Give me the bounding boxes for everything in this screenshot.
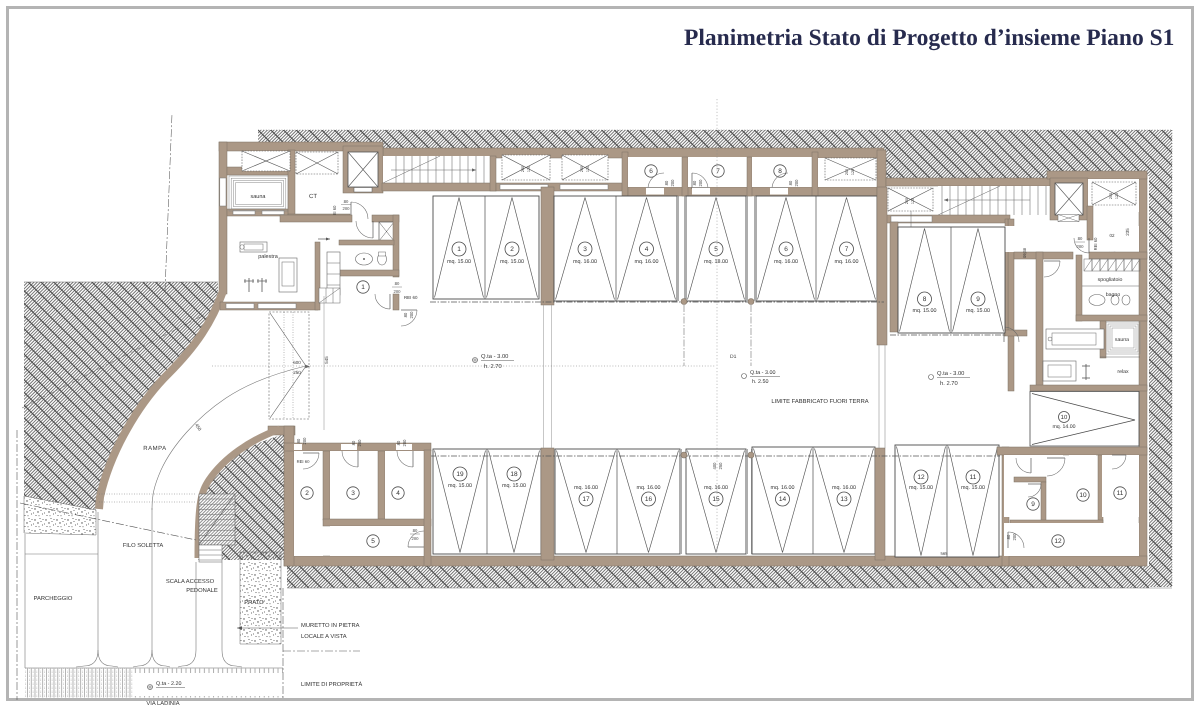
svg-text:RAMPA: RAMPA [143,445,166,452]
svg-text:120: 120 [911,198,915,204]
svg-text:1: 1 [457,246,461,253]
svg-text:80: 80 [413,528,418,533]
svg-text:200: 200 [409,311,414,319]
svg-text:400: 400 [712,462,717,470]
svg-text:1: 1 [361,284,365,291]
svg-text:Q.ta - 3.00: Q.ta - 3.00 [481,353,508,360]
svg-text:Q.ta - 3.00: Q.ta - 3.00 [937,370,964,377]
svg-text:200: 200 [580,166,584,172]
svg-text:PRATO: PRATO [244,599,264,606]
svg-text:13: 13 [840,496,848,503]
svg-text:120: 120 [851,169,855,175]
svg-text:D1: D1 [730,354,737,360]
svg-text:mq. 16.00: mq. 16.00 [774,259,798,265]
svg-text:Planimetria Stato di Progetto: Planimetria Stato di Progetto d’insieme … [684,25,1174,51]
svg-text:200: 200 [412,536,420,541]
svg-text:18: 18 [510,471,518,478]
svg-text:mq. 16.00: mq. 16.00 [574,485,598,491]
svg-text:2: 2 [510,246,514,253]
svg-text:200: 200 [845,169,849,175]
svg-text:SCALA ACCESSO: SCALA ACCESSO [166,578,215,585]
svg-text:relax: relax [1117,369,1129,375]
svg-text:palestra: palestra [258,254,279,260]
svg-text:200: 200 [357,439,362,447]
svg-text:4: 4 [645,246,649,253]
svg-text:14: 14 [779,496,787,503]
svg-text:200: 200 [394,289,402,294]
svg-text:80: 80 [396,440,401,445]
svg-text:3: 3 [583,246,587,253]
svg-text:mq. 16.00: mq. 16.00 [835,259,859,265]
svg-text:600: 600 [293,360,301,365]
svg-text:80: 80 [692,180,697,185]
svg-text:mq. 15.00: mq. 15.00 [961,485,985,491]
svg-text:LIMITE DI PROPRIETÀ: LIMITE DI PROPRIETÀ [301,680,362,688]
svg-text:9: 9 [976,296,980,303]
svg-text:120: 120 [586,166,590,172]
svg-text:REI 60: REI 60 [297,459,310,464]
svg-text:16: 16 [645,496,653,503]
svg-text:spogliatoio: spogliatoio [1098,277,1123,283]
svg-text:h. 2.50: h. 2.50 [752,379,769,385]
svg-text:80: 80 [344,199,349,204]
svg-text:80: 80 [664,180,669,185]
svg-text:80: 80 [403,312,408,317]
svg-text:200: 200 [794,179,799,187]
svg-text:250: 250 [718,462,723,470]
svg-text:8: 8 [923,296,927,303]
svg-text:80: 80 [296,438,301,443]
svg-text:200: 200 [402,439,407,447]
svg-text:6: 6 [784,246,788,253]
svg-text:200: 200 [1077,244,1085,249]
svg-text:sauna: sauna [251,194,267,200]
svg-text:REI 60: REI 60 [1093,237,1098,250]
svg-text:200: 200 [905,198,909,204]
svg-text:200: 200 [1012,533,1017,541]
svg-text:mq. 15.00: mq. 15.00 [966,308,990,314]
svg-text:mq. 15.00: mq. 15.00 [448,483,472,489]
svg-text:120: 120 [527,166,531,172]
svg-text:17: 17 [582,496,590,503]
svg-text:80: 80 [788,180,793,185]
svg-text:19: 19 [456,471,464,478]
svg-text:10: 10 [1061,414,1068,421]
svg-text:bagno: bagno [1106,292,1121,298]
svg-text:VIA LADINIA: VIA LADINIA [146,701,179,707]
svg-text:mq. 15.00: mq. 15.00 [500,259,524,265]
svg-text:mq. 18.00: mq. 18.00 [704,259,728,265]
svg-text:120: 120 [1115,193,1119,199]
svg-text:mq. 15.00: mq. 15.00 [502,483,526,489]
svg-text:sauna: sauna [1115,337,1129,343]
svg-text:mq. 16.00: mq. 16.00 [771,485,795,491]
svg-text:mq. 16.00: mq. 16.00 [573,259,597,265]
svg-text:CT: CT [309,193,317,200]
svg-text:200: 200 [670,179,675,187]
svg-text:80: 80 [1078,236,1083,241]
svg-text:565: 565 [941,551,949,556]
svg-text:235: 235 [1125,228,1130,236]
svg-text:FILO SOLETTA: FILO SOLETTA [123,542,164,549]
svg-text:REI 60: REI 60 [404,295,418,300]
svg-text:200: 200 [698,179,703,187]
svg-text:200: 200 [521,166,525,172]
svg-text:200: 200 [343,206,351,211]
svg-text:mq. 15.00: mq. 15.00 [909,485,933,491]
svg-text:15: 15 [712,496,720,503]
svg-text:80: 80 [1006,534,1011,539]
svg-text:3: 3 [351,490,355,497]
svg-text:250: 250 [293,370,301,375]
svg-text:5: 5 [714,246,718,253]
svg-text:12: 12 [1054,538,1062,545]
svg-text:Q.ta - 3.00: Q.ta - 3.00 [750,370,775,376]
svg-text:80: 80 [395,281,400,286]
svg-text:7: 7 [716,168,720,175]
svg-text:02: 02 [1109,233,1115,238]
svg-text:12: 12 [917,474,925,481]
svg-text:PARCHEGGIO: PARCHEGGIO [34,595,73,602]
svg-text:mq. 15.00: mq. 15.00 [447,259,471,265]
svg-text:PEDONALE: PEDONALE [186,587,218,594]
svg-text:h. 2.70: h. 2.70 [484,363,502,370]
svg-text:mq. 16.00: mq. 16.00 [704,485,728,491]
svg-text:200: 200 [1109,193,1113,199]
svg-text:10: 10 [1079,492,1087,499]
svg-text:LOCALE A VISTA: LOCALE A VISTA [301,633,347,640]
svg-text:mq. 16.00: mq. 16.00 [635,259,659,265]
svg-text:7: 7 [845,246,849,253]
svg-text:9: 9 [1031,501,1035,508]
svg-text:4: 4 [396,490,400,497]
svg-text:mq. 14.00: mq. 14.00 [1052,424,1075,430]
svg-text:11: 11 [1117,490,1124,497]
svg-text:5: 5 [371,538,375,545]
svg-text:200: 200 [302,437,307,445]
svg-text:mq. 16.00: mq. 16.00 [832,485,856,491]
svg-text:09|38: 09|38 [1022,247,1027,258]
svg-text:6: 6 [649,168,653,175]
svg-text:h. 2.70: h. 2.70 [940,380,958,387]
svg-text:LIMITE FABBRICATO FUORI TERRA: LIMITE FABBRICATO FUORI TERRA [771,398,868,405]
svg-text:Q.ta - 2.20: Q.ta - 2.20 [156,681,181,687]
svg-text:545: 545 [324,356,329,364]
svg-text:2: 2 [305,490,309,497]
svg-text:11: 11 [970,474,977,481]
svg-text:MURETTO IN PIETRA: MURETTO IN PIETRA [301,622,360,629]
svg-text:80: 80 [351,440,356,445]
svg-text:mq. 15.00: mq. 15.00 [913,308,937,314]
svg-text:mq. 16.00: mq. 16.00 [637,485,661,491]
